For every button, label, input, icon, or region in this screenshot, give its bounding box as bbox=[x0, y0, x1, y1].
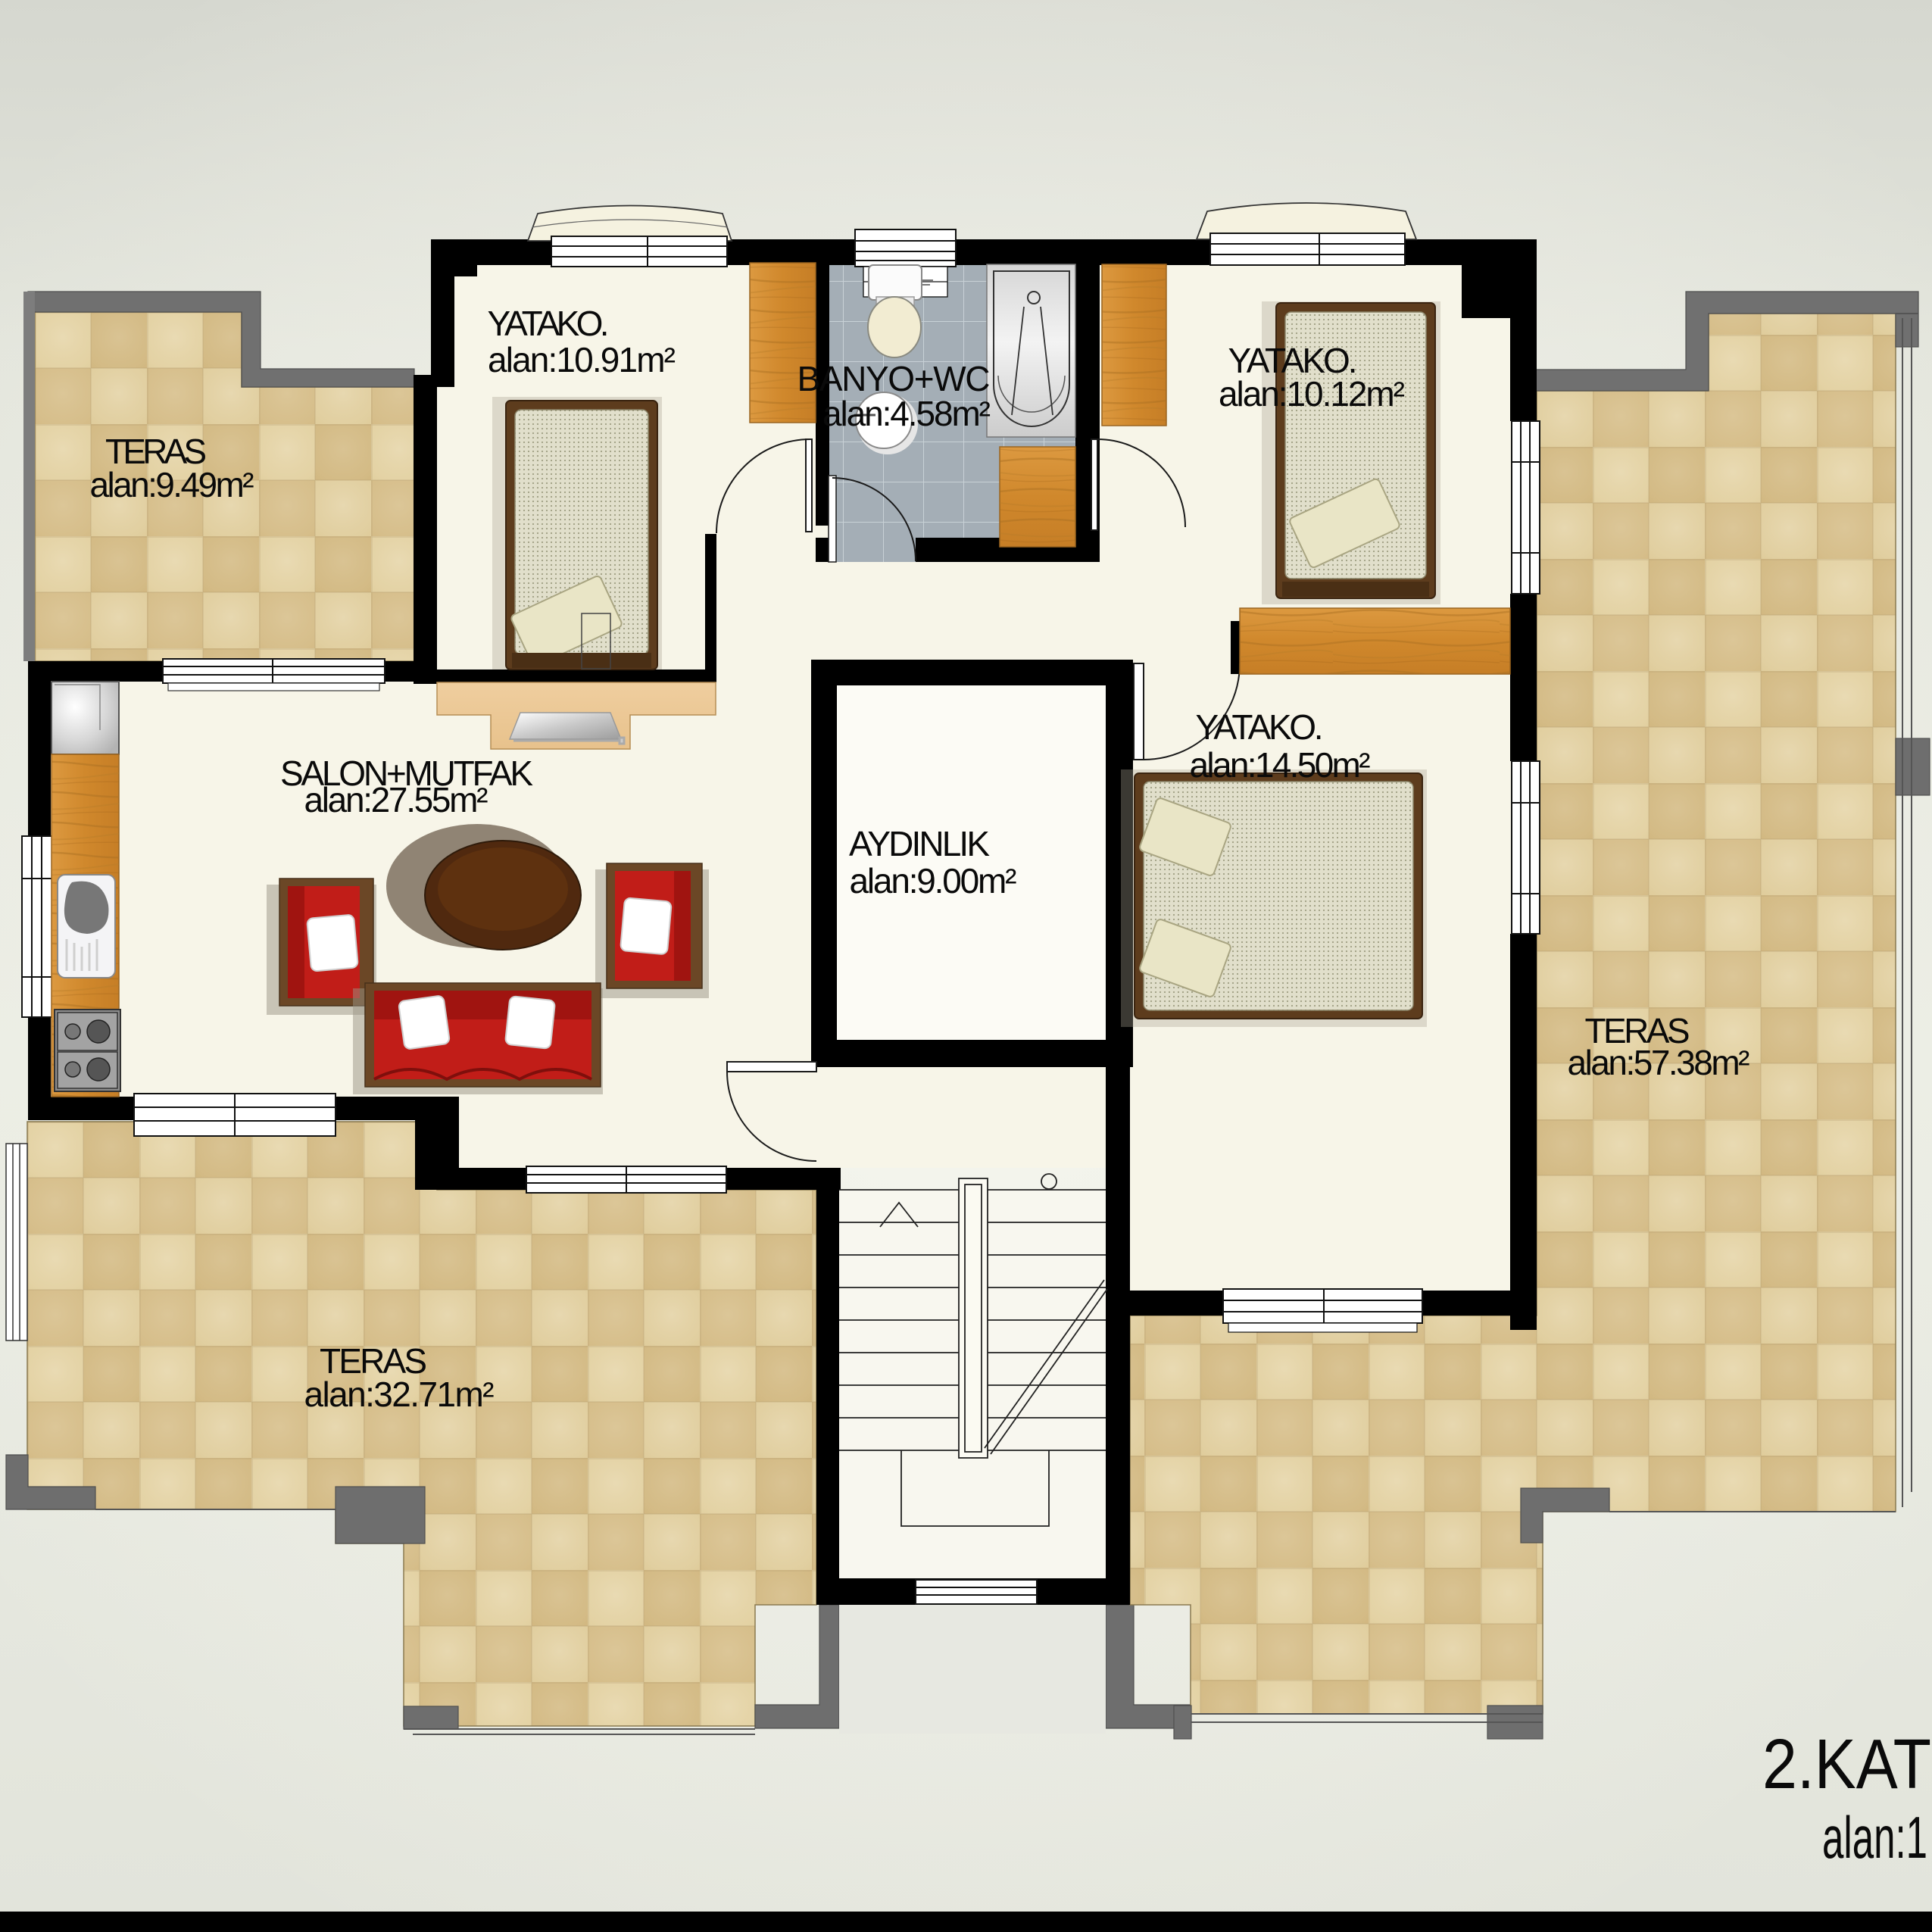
svg-text:alan:10.91m²: alan:10.91m² bbox=[488, 340, 676, 379]
svg-text:AYDINLIK: AYDINLIK bbox=[849, 824, 990, 863]
svg-text:alan:14.50m²: alan:14.50m² bbox=[1190, 745, 1371, 785]
svg-text:YATAKO.: YATAKO. bbox=[488, 304, 610, 343]
svg-text:alan:10.12m²: alan:10.12m² bbox=[1219, 374, 1405, 414]
svg-text:alan:1: alan:1 bbox=[1822, 1804, 1927, 1871]
svg-text:BANYO+WC: BANYO+WC bbox=[797, 359, 991, 398]
svg-text:alan:9.00m²: alan:9.00m² bbox=[850, 861, 1017, 900]
svg-text:alan:9.49m²: alan:9.49m² bbox=[90, 465, 254, 504]
svg-text:alan:27.55m²: alan:27.55m² bbox=[304, 780, 488, 819]
svg-text:alan:4.58m²: alan:4.58m² bbox=[822, 394, 991, 433]
svg-text:alan:32.71m²: alan:32.71m² bbox=[304, 1375, 495, 1414]
svg-text:alan:57.38m²: alan:57.38m² bbox=[1568, 1043, 1750, 1082]
svg-text:2.KAT: 2.KAT bbox=[1762, 1724, 1931, 1803]
svg-text:YATAKO.: YATAKO. bbox=[1196, 707, 1324, 747]
